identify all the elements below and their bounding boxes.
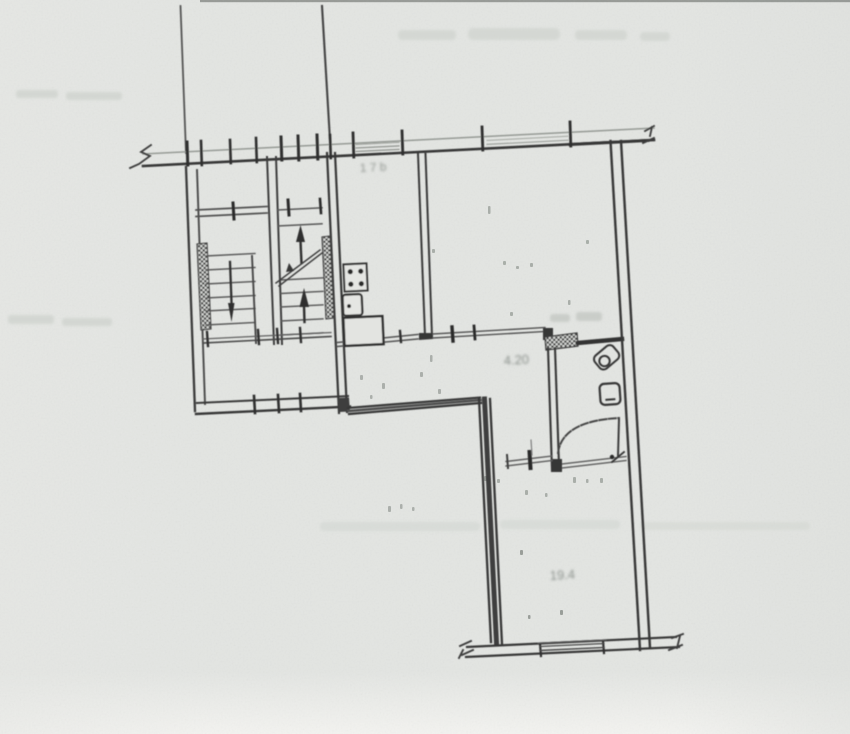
svg-text:19.4: 19.4 — [549, 567, 575, 583]
svg-text:1 7 b: 1 7 b — [359, 160, 387, 175]
svg-text:4.20: 4.20 — [503, 352, 529, 368]
